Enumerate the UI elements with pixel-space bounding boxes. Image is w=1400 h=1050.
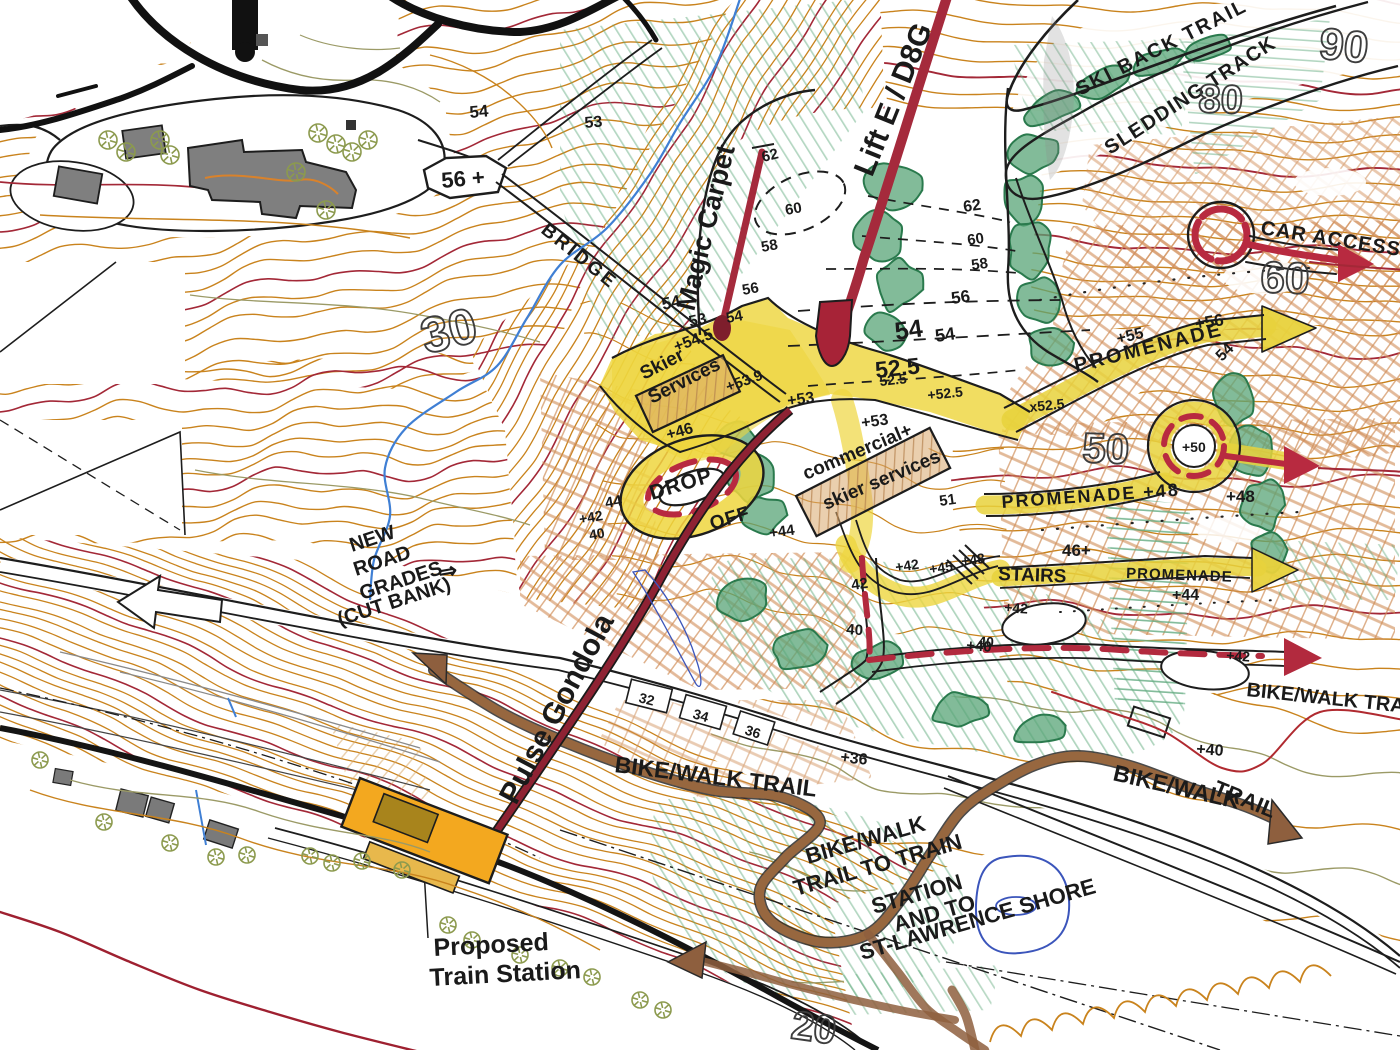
svg-text:+48: +48 <box>1226 487 1255 506</box>
svg-text:62: 62 <box>962 197 982 216</box>
svg-text:42: 42 <box>850 575 869 594</box>
svg-text:40: 40 <box>978 633 995 650</box>
svg-text:56: 56 <box>741 279 760 299</box>
svg-text:+36: +36 <box>840 749 869 769</box>
svg-text:53: 53 <box>584 113 603 131</box>
svg-text:58: 58 <box>760 236 779 256</box>
svg-text:+42: +42 <box>894 556 920 575</box>
svg-text:+44: +44 <box>1172 587 1199 604</box>
svg-text:+50: +50 <box>1182 439 1206 455</box>
svg-text:46+: 46+ <box>1062 541 1091 560</box>
svg-text:STAIRS: STAIRS <box>998 564 1067 587</box>
svg-text:54: 54 <box>893 314 925 346</box>
svg-text:50: 50 <box>1082 424 1130 473</box>
svg-text:40: 40 <box>846 621 864 639</box>
svg-text:51: 51 <box>938 491 957 510</box>
svg-text:54: 54 <box>934 323 957 346</box>
svg-text:+48: +48 <box>960 550 986 569</box>
svg-text:60: 60 <box>966 230 985 249</box>
svg-text:40: 40 <box>588 524 606 542</box>
svg-text:60: 60 <box>784 199 803 219</box>
svg-text:+45: +45 <box>928 558 954 577</box>
svg-text:+42: +42 <box>1004 599 1029 617</box>
svg-text:20: 20 <box>789 1003 839 1050</box>
svg-text:+42: +42 <box>1226 647 1251 665</box>
svg-text:+40: +40 <box>1196 741 1224 760</box>
svg-text:54: 54 <box>469 101 490 122</box>
svg-text:80: 80 <box>1198 77 1244 123</box>
svg-text:56 +: 56 + <box>440 164 485 193</box>
svg-text:+44: +44 <box>768 521 796 541</box>
svg-text:56: 56 <box>950 287 971 308</box>
svg-text:52.5: 52.5 <box>879 370 908 389</box>
svg-text:60: 60 <box>1260 253 1311 304</box>
svg-text:58: 58 <box>970 255 989 274</box>
svg-text:90: 90 <box>1317 19 1371 73</box>
